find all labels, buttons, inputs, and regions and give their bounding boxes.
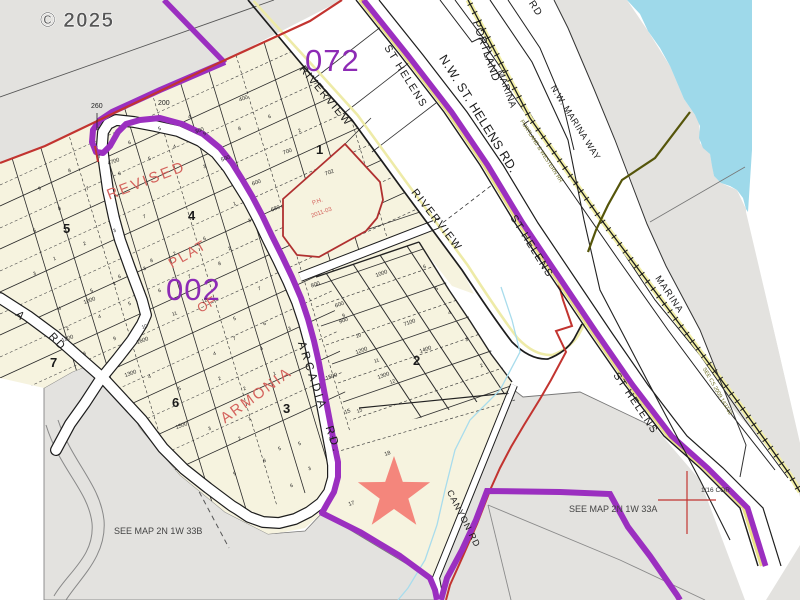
svg-text:4: 4 bbox=[188, 208, 196, 223]
svg-text:7: 7 bbox=[50, 355, 57, 370]
svg-text:SEE MAP 2N 1W 33A: SEE MAP 2N 1W 33A bbox=[569, 504, 657, 514]
svg-text:5: 5 bbox=[63, 221, 70, 236]
svg-text:200: 200 bbox=[158, 100, 170, 107]
svg-text:260: 260 bbox=[91, 103, 103, 110]
svg-text:6: 6 bbox=[172, 395, 179, 410]
svg-text:2: 2 bbox=[413, 353, 420, 368]
svg-text:3: 3 bbox=[283, 401, 290, 416]
svg-text:© 2025: © 2025 bbox=[40, 9, 114, 32]
svg-text:1: 1 bbox=[316, 142, 323, 157]
svg-text:SEE MAP 2N 1W 33B: SEE MAP 2N 1W 33B bbox=[114, 526, 202, 536]
svg-text:1/16 COR: 1/16 COR bbox=[701, 487, 730, 494]
